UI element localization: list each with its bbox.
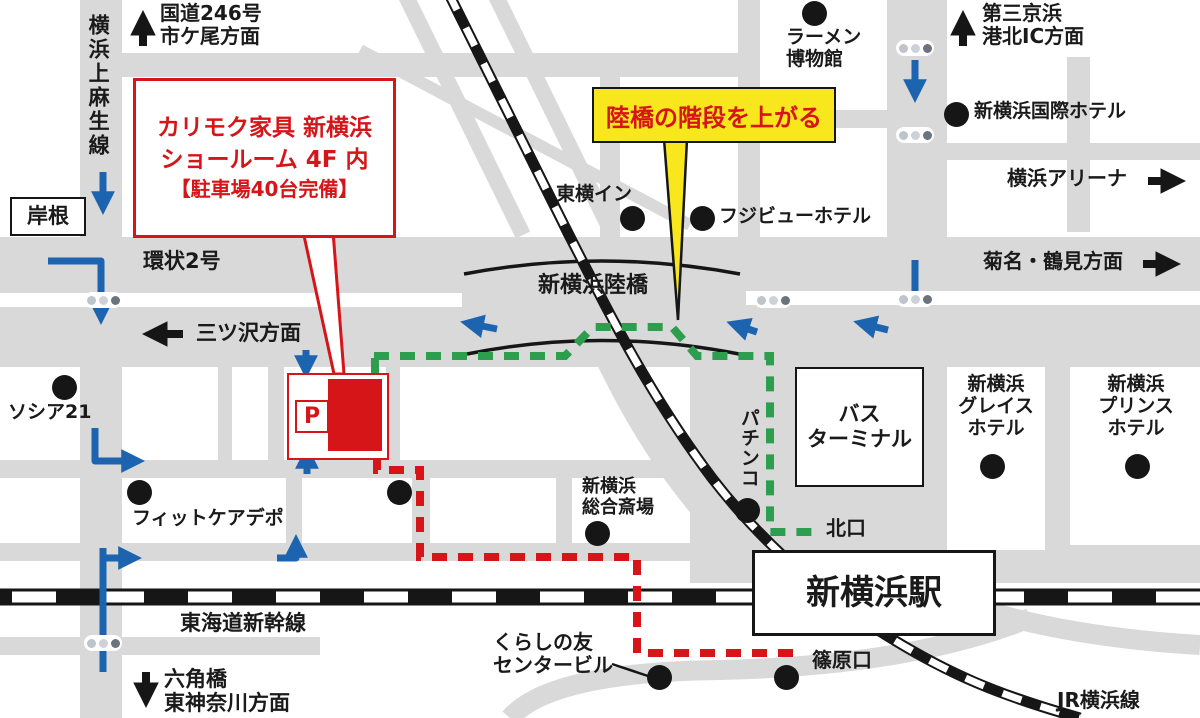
callout-line1: カリモク家具 新横浜 (157, 113, 372, 144)
poi-label-pachinko: パチンコ (737, 408, 759, 488)
poi-dot-ramen-museum (802, 1, 827, 26)
rokkaku-line1: 六角橋 (164, 667, 290, 691)
road-label-jr-yokohama: JR横浜線 (1057, 689, 1140, 712)
traffic-light-icon (896, 127, 934, 143)
daisankeihin-line2: 港北IC方面 (982, 25, 1084, 48)
kishine-box: 岸根 (10, 197, 86, 236)
poi-label-fujiview: フジビューホテル (719, 206, 871, 228)
poi-dot-corner (387, 480, 412, 505)
poi-label-kokusai-hotel: 新横浜国際ホテル (974, 101, 1126, 123)
ramen-line2: 博物館 (786, 49, 861, 71)
direction-route246: 国道246号 市ケ尾方面 (160, 2, 262, 48)
poi-dot-saijo (585, 521, 610, 546)
traffic-light-icon (84, 292, 122, 308)
traffic-light-icon (896, 40, 934, 56)
bus-line2: ターミナル (807, 427, 912, 452)
poi-label-kurashino: くらしの友 センタービル (493, 631, 613, 677)
poi-dot-kurashino (647, 665, 672, 690)
route246-line2: 市ケ尾方面 (160, 25, 262, 48)
route-map: 横浜上麻生線 国道246号 市ケ尾方面 岸根 環状2号 三ツ沢方面 新横浜陸橋 … (0, 0, 1200, 718)
route246-line1: 国道246号 (160, 2, 262, 25)
traffic-light-icon (84, 635, 122, 651)
direction-mitsuzawa: 三ツ沢方面 (196, 321, 301, 345)
road-label-shinkansen: 東海道新幹線 (180, 611, 306, 635)
showroom-building-fill (328, 379, 382, 451)
road-label-kamiasao: 横浜上麻生線 (86, 14, 110, 158)
poi-label-toyoko-inn: 東横イン (556, 184, 632, 206)
bus-terminal-box: バス ターミナル (795, 367, 924, 487)
road-median-right (746, 291, 1200, 305)
poi-label-saijo: 新横浜 総合斎場 (582, 477, 654, 518)
poi-dot-pachinko (735, 498, 760, 523)
station-curve-right (990, 612, 1200, 645)
direction-daisankeihin: 第三京浜 港北IC方面 (982, 2, 1084, 48)
grace-line3: ホテル (947, 418, 1045, 440)
bus-line1: バス (839, 402, 881, 427)
rokkaku-line2: 東神奈川方面 (164, 691, 290, 715)
showroom-callout: カリモク家具 新横浜 ショールーム 4F 内 【駐車場40台完備】 (133, 78, 396, 238)
road-label-kanjo2: 環状2号 (143, 249, 221, 273)
poi-label-prince-hotel: 新横浜 プリンス ホテル (1072, 374, 1200, 440)
prince-line3: ホテル (1072, 418, 1200, 440)
parking-icon: P (295, 400, 329, 433)
poi-label-ramen-museum: ラーメン 博物館 (786, 27, 861, 71)
karimoku-showroom-building: P (287, 373, 389, 460)
road-median-left (0, 293, 462, 307)
poi-dot-fitcare (127, 480, 152, 505)
poi-dot-kokusai-hotel (944, 102, 969, 127)
poi-label-fitcare: フィットケアデポ (132, 508, 284, 530)
saijo-line2: 総合斎場 (582, 498, 654, 519)
poi-dot-grace-hotel (980, 454, 1005, 479)
exit-label-kitaguchi: 北口 (826, 517, 866, 540)
prince-line2: プリンス (1072, 396, 1200, 418)
road-label-rikkyo: 新横浜陸橋 (538, 273, 648, 298)
saijo-line1: 新横浜 (582, 477, 654, 498)
grace-line2: グレイス (947, 396, 1045, 418)
ramen-line1: ラーメン (786, 27, 861, 49)
grace-line1: 新横浜 (947, 374, 1045, 396)
traffic-light-icon (896, 291, 934, 307)
poi-dot-prince-hotel (1125, 454, 1150, 479)
poi-label-socia21: ソシア21 (8, 402, 91, 424)
kurashino-line1: くらしの友 (493, 631, 613, 654)
direction-rokkakubashi: 六角橋 東神奈川方面 (164, 667, 290, 715)
poi-dot-shinohara (774, 665, 799, 690)
exit-label-shinohara: 篠原口 (812, 649, 872, 672)
poi-dot-fujiview-hotel (690, 206, 715, 231)
overpass-stairs-note: 陸橋の階段を上がる (592, 87, 836, 143)
station-box: 新横浜駅 (752, 550, 996, 636)
direction-kikuna: 菊名・鶴見方面 (983, 250, 1123, 273)
poi-dot-socia21 (52, 375, 77, 400)
traffic-light-icon (754, 292, 792, 308)
prince-line1: 新横浜 (1072, 374, 1200, 396)
poi-dot-toyoko-inn (620, 206, 645, 231)
kurashino-line2: センタービル (493, 654, 613, 677)
poi-label-arena: 横浜アリーナ (1007, 167, 1127, 190)
callout-line3: 【駐車場40台完備】 (171, 176, 359, 203)
poi-label-grace-hotel: 新横浜 グレイス ホテル (947, 374, 1045, 440)
callout-line2: ショールーム 4F 内 (160, 145, 368, 176)
daisankeihin-line1: 第三京浜 (982, 2, 1084, 25)
